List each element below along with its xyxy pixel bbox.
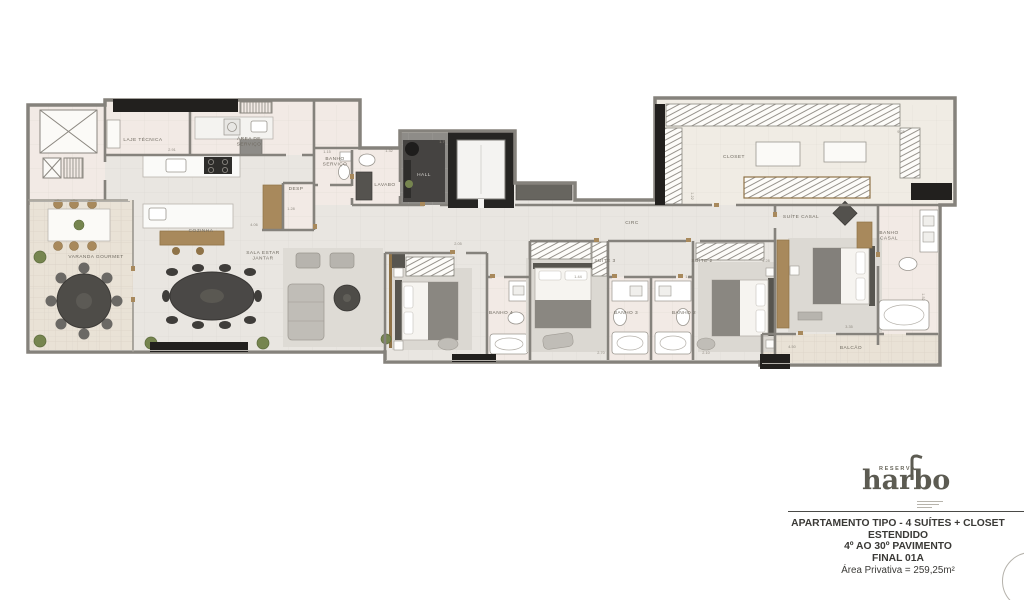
tech-unit [107,120,120,148]
suite4-pillow-2 [404,312,413,334]
dimension-label: 1.22 [690,192,694,199]
room-label-cozinha: COZINHA [189,228,214,234]
door-jamb [876,252,880,257]
room-label-banho-4: BANHO 4 [489,310,513,316]
room-label-banho-casal: BANHOCASAL [879,230,898,242]
title-block: APARTAMENTO TIPO - 4 SUÍTES + CLOSET EST… [772,518,1024,577]
banho3-tub [612,332,648,354]
room-label-desp: DESP [289,186,304,192]
dimension-label: 4.50 [788,345,795,349]
logo: RESERVA harbo [862,463,972,511]
suite-casal-pillow-2 [856,278,865,300]
dimension-label: 1.44 [574,275,581,279]
suite-casal-blanket [813,248,841,304]
title-line-3: 4º AO 30º PAVIMENTO [772,541,1024,553]
door-jamb [714,203,719,207]
suite2-headboard [768,278,774,336]
structural-beam [113,99,238,112]
closet-island-1 [756,142,800,166]
washer [224,119,240,135]
hall-table [405,142,419,156]
dimension-label: 3.35 [845,325,852,329]
title-line-4: FINAL 01A [772,553,1024,565]
sofa [288,284,324,340]
table-plant-icon [74,220,84,230]
suite2-nightstand-1 [766,268,774,276]
hall-plant-icon [405,180,413,188]
door-jamb [350,174,354,179]
floorplan-page: 2.914.061.281.151.321.792.051.441.602.70… [0,0,1024,600]
dimension-label: 1.52 [921,293,925,300]
tv-panel-wood-edge [389,252,392,348]
banho-casal-toilet [899,258,917,271]
logo-tagline [917,499,943,510]
dimension-label: 4.06 [250,223,257,227]
banho4-tub [490,334,528,354]
suite2-nightstand-2 [766,340,774,348]
door-jamb [594,238,599,242]
round-table-center [76,293,92,309]
banho2-tub [655,332,691,354]
closet-island-rail [744,177,870,198]
island-sink [149,208,166,220]
door-jamb [798,331,803,335]
armchair-2 [330,253,354,268]
louver-window [240,102,272,113]
door-jamb [131,266,135,271]
banho3-sink [630,286,642,296]
room-label-suite-3: SUÍTE 3 [594,257,615,264]
lavabo-furniture [356,154,375,200]
suite-casal-pillow-1 [856,252,865,274]
balcony-planter [760,354,790,369]
kitchen-sink [166,159,186,172]
room-label-closet: CLOSET [723,154,745,160]
elevator [448,131,514,208]
suite-casal-desk-chair [790,266,799,275]
suite2-chair [697,338,715,350]
banho-casal-tub [879,300,929,330]
louver-panel [64,158,83,178]
closet-rail-top [666,104,900,126]
dimension-label: 2.05 [454,242,461,246]
bar-stool-1 [172,247,180,255]
suite4-blanket [428,282,458,340]
door-jamb [612,274,617,278]
banho4-sink [513,286,524,295]
dimension-label: 1.79 [439,140,446,144]
suite2-pillow-1 [756,284,765,306]
suite2-wardrobe [696,243,764,260]
door-jamb [678,274,683,278]
structural-column [655,104,665,205]
room-label-banho-3: BANHO 3 [614,310,638,316]
suite2-pillow-2 [756,310,765,332]
suite4-chair [438,338,458,350]
room-label-area-servico: ÁREA DESERVIÇO [237,135,262,148]
coffee-table-decor [343,294,351,302]
suite4-furniture [392,257,472,350]
title-line-2: ESTENDIDO [772,530,1024,542]
door-jamb [686,238,691,242]
bar-stool-2 [196,247,204,255]
room-label-banho-servico: BANHOSERVIÇO [323,156,348,168]
lavabo-toilet [359,154,375,166]
suite3-blanket [535,300,591,328]
private-area-text: Área Privativa = 259,25m² [772,565,1024,577]
room-label-banho-2: BANHO 2 [672,310,696,316]
banho2-sink [659,286,671,296]
pantry-cabinet [263,185,282,230]
logo-wordmark: harbo [862,465,950,496]
suite-casal-desk [777,240,789,328]
cooktop [204,157,232,174]
plant-icon [257,337,269,349]
door-jamb [773,212,777,217]
armchair-1 [296,253,320,268]
banho-casal-sink-1 [923,216,934,226]
lavabo-vanity [356,172,372,200]
suite4-pillow-1 [404,286,413,308]
dimension-label: 4.28 [762,259,769,263]
dimension-label: 9.25 [897,130,904,134]
suite-casal-minibar [857,222,872,248]
door-jamb [131,297,135,302]
structural-column [911,183,952,200]
room-label-hall: HALL [417,172,431,178]
suite-casal-bench [798,312,822,320]
room-label-laje-tecnica: LAJE TÉCNICA [123,136,163,143]
dimension-label: 2.91 [168,148,175,152]
title-separator [788,511,1024,512]
room-label-balcao: BALCÃO [840,344,862,351]
logo-mark-icon [908,454,924,480]
suite4-wardrobe [406,257,454,276]
door-jamb [490,274,495,278]
suite3-wardrobe [529,242,591,259]
room-label-lavabo: LAVABO [374,182,395,188]
door-jamb [313,224,317,229]
room-label-suite-casal: SUÍTE CASAL [783,213,819,220]
hall-shelf [404,160,411,198]
dimension-label: 1.60 [685,275,692,279]
door-jamb [450,250,455,254]
suite3-pillow-1 [539,271,561,280]
dimension-label: 1.28 [287,207,294,211]
suite4-nightstand-2 [394,341,403,350]
banho-casal-sink-2 [923,232,934,242]
dimension-label: 1.32 [385,149,392,153]
dining-table-runner [200,289,224,303]
corridor-console [516,184,572,200]
suite4-nightstand-1 [394,268,403,277]
door-jamb [420,202,425,206]
hall-furniture [403,140,445,202]
plant-icon [34,251,46,263]
dimension-label: 1.15 [323,150,330,154]
closet-island-2 [824,142,866,162]
title-line-1: APARTAMENTO TIPO - 4 SUÍTES + CLOSET [772,518,1024,530]
room-label-suite-2: SUÍTE 2 [691,257,712,264]
room-label-varanda-gourmet: VARANDA GOURMET [68,254,123,260]
closet-rail-right [900,128,920,178]
suite4-headboard [395,280,402,340]
room-label-circ: CIRC [625,220,639,226]
plant-icon [34,335,46,347]
dimension-label: 2.70 [597,351,604,355]
suite-casal-headboard [869,246,875,306]
laundry-sink [251,121,267,132]
suite2-blanket [712,280,740,336]
dimension-label: 2.10 [702,351,709,355]
